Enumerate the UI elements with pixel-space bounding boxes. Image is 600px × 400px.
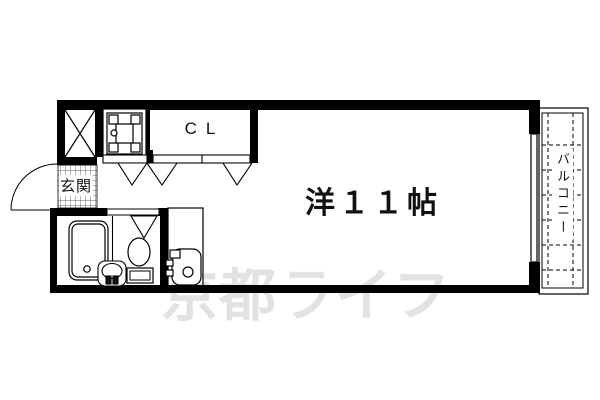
- floor-plan: 京都ライフ: [0, 0, 600, 400]
- bathroom: [57, 209, 160, 286]
- washroom: [166, 208, 203, 290]
- entrance-door-swing: [11, 164, 57, 210]
- equipment-box: [103, 109, 146, 158]
- balcony-label: バルコニー: [552, 149, 573, 240]
- entrance-label: 玄関: [59, 175, 93, 196]
- window: [531, 134, 537, 262]
- vanity-unit: [166, 249, 201, 285]
- closet-label: CL: [153, 119, 250, 139]
- washbasin: [98, 261, 126, 286]
- room-size-label: 洋１１帖: [280, 178, 466, 222]
- shaft-x-box: [65, 110, 95, 157]
- closet-folding-doors: [103, 155, 252, 185]
